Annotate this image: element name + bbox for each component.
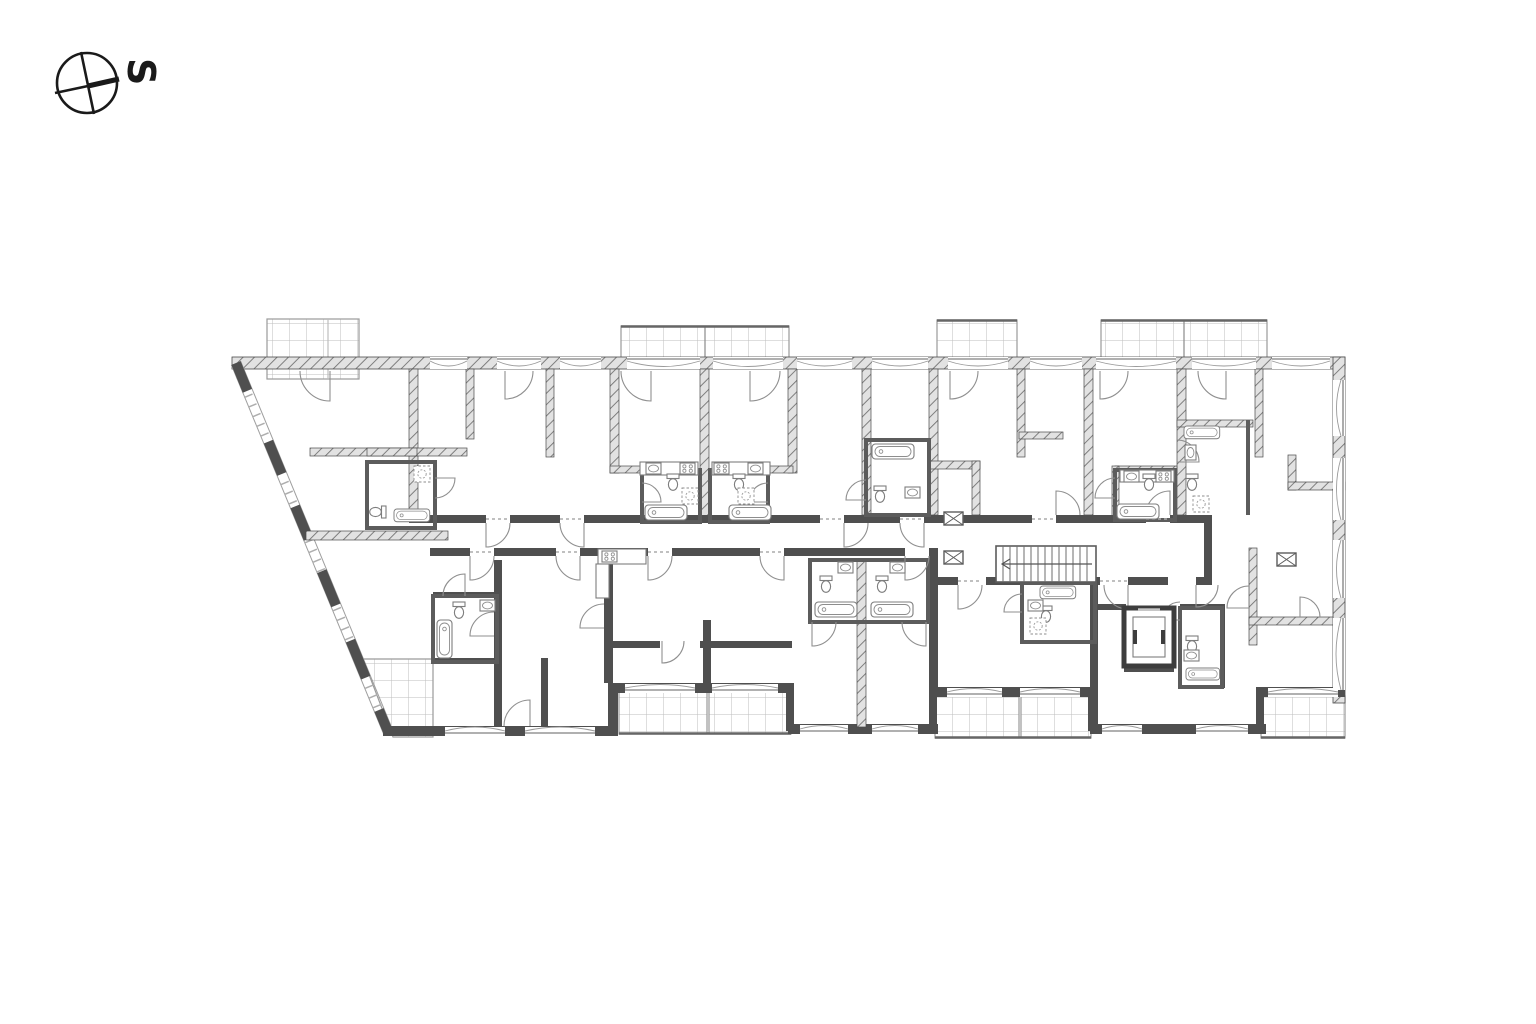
balcony xyxy=(1021,696,1091,738)
compass-icon: S xyxy=(55,52,163,114)
balcony xyxy=(619,692,707,734)
bathtub-icon xyxy=(729,505,771,520)
stairs-icon xyxy=(996,546,1096,582)
sink-icon xyxy=(646,463,661,474)
sink-icon xyxy=(905,487,920,498)
bathtub-icon xyxy=(871,602,913,617)
sink-icon xyxy=(1184,650,1199,661)
washing-machine-icon xyxy=(414,466,430,482)
sink-icon xyxy=(1124,471,1139,482)
toilet-icon xyxy=(820,576,832,592)
bathtub-icon xyxy=(1117,504,1159,519)
bathtub-icon xyxy=(1040,586,1076,599)
sink-icon xyxy=(480,600,495,611)
washing-machine-icon xyxy=(1193,496,1209,512)
stove-icon xyxy=(680,463,695,474)
stove-icon xyxy=(602,551,617,562)
bathtub-icon xyxy=(872,444,914,459)
floor-plan: S xyxy=(0,0,1536,1024)
toilet-icon xyxy=(667,474,679,490)
sink-icon xyxy=(1028,600,1043,611)
sink-icon xyxy=(748,463,763,474)
bathtub-icon xyxy=(815,602,857,617)
floor-plan-sheet: S xyxy=(0,0,1536,1024)
sink-icon xyxy=(890,562,905,573)
balcony xyxy=(935,696,1019,738)
elevator-icon xyxy=(1124,608,1174,666)
stove-icon xyxy=(1156,471,1171,482)
bathtub-icon xyxy=(1186,668,1220,680)
washing-machine-icon xyxy=(738,488,754,504)
washing-machine-icon xyxy=(1030,618,1046,634)
bottom-windows xyxy=(445,684,1338,736)
bathtub-icon xyxy=(437,620,452,658)
toilet-icon xyxy=(874,486,886,502)
balcony xyxy=(709,692,791,734)
bathtub-icon xyxy=(394,509,430,522)
sink-icon xyxy=(1185,445,1196,460)
toilet-icon xyxy=(1143,474,1155,490)
toilet-icon xyxy=(1186,474,1198,490)
stove-icon xyxy=(714,463,729,474)
duct-icon xyxy=(944,512,963,525)
bathtub-icon xyxy=(1184,426,1220,439)
toilet-icon xyxy=(876,576,888,592)
compass-label: S xyxy=(119,58,163,85)
balcony xyxy=(1261,696,1345,738)
balcony xyxy=(267,319,359,379)
washing-machine-icon xyxy=(682,488,698,504)
bathtub-icon xyxy=(645,505,687,520)
toilet-icon xyxy=(453,602,465,618)
top-windows xyxy=(430,357,1330,369)
sink-icon xyxy=(838,562,853,573)
toilet-icon xyxy=(370,506,386,518)
duct-icon xyxy=(944,551,963,564)
terrace xyxy=(363,659,433,737)
duct-icon xyxy=(1277,553,1296,566)
